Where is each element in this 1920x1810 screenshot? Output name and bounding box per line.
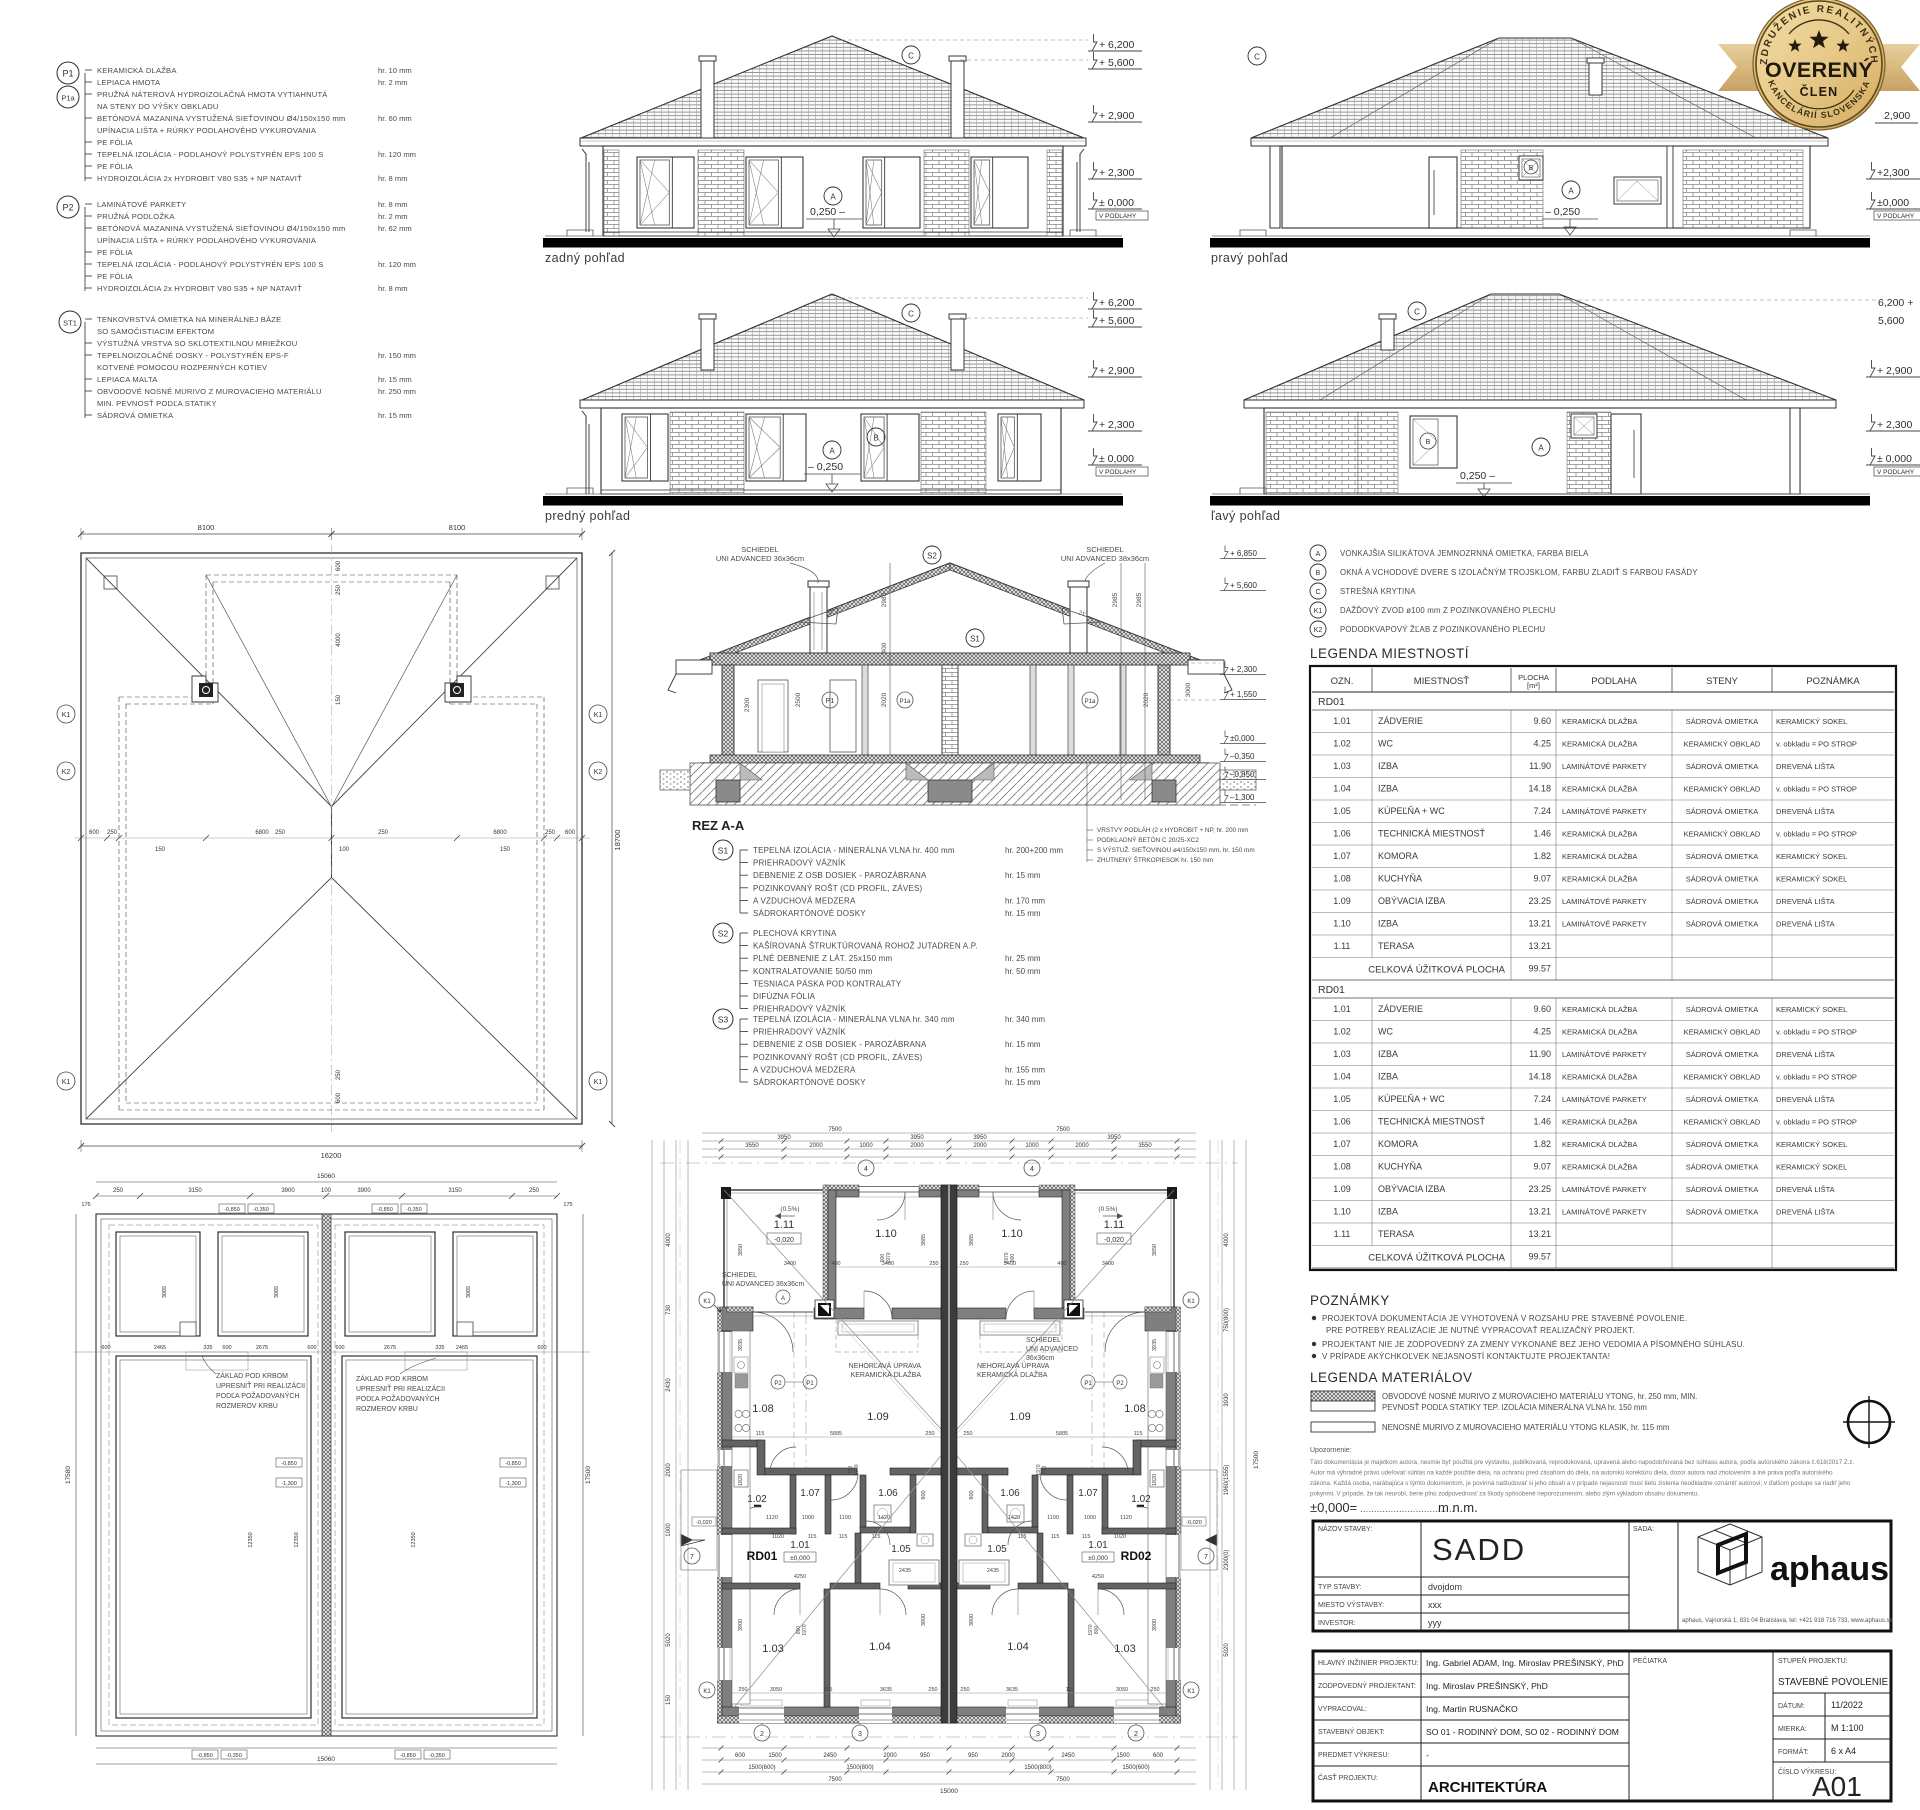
svg-text:900: 900 (1010, 1254, 1016, 1263)
svg-text:S3: S3 (718, 1015, 729, 1025)
svg-text:hr. 8 mm: hr. 8 mm (378, 174, 408, 183)
svg-text:LAMINÁTOVÉ PARKETY: LAMINÁTOVÉ PARKETY (1562, 1095, 1647, 1104)
svg-text:KERAMICKÁ DLAŽBA: KERAMICKÁ DLAŽBA (1562, 1118, 1637, 1127)
svg-text:UNI ADVANCED 36x36cm: UNI ADVANCED 36x36cm (716, 554, 804, 563)
svg-text:4250: 4250 (794, 1574, 806, 1580)
svg-text:STAVEBNÝ OBJEKT:: STAVEBNÝ OBJEKT: (1318, 1727, 1385, 1736)
svg-text:-: - (1426, 1750, 1429, 1760)
svg-text:SO 01 - RODINNÝ DOM, SO 02 - R: SO 01 - RODINNÝ DOM, SO 02 - RODINNÝ DOM (1426, 1727, 1619, 1737)
svg-text:SO SAMOČISTIACIM EFEKTOM: SO SAMOČISTIACIM EFEKTOM (97, 327, 214, 336)
svg-text:±0,000: ±0,000 (1877, 197, 1909, 209)
svg-text:KOMORA: KOMORA (1378, 1139, 1418, 1149)
svg-text:P1: P1 (1084, 1381, 1092, 1387)
svg-text:5885: 5885 (1056, 1431, 1068, 1437)
svg-text:Ing. Miroslav PREŠINSKÝ, PhD: Ing. Miroslav PREŠINSKÝ, PhD (1426, 1681, 1548, 1691)
svg-text:1.08: 1.08 (1333, 1162, 1351, 1172)
svg-text:V PODLAHY: V PODLAHY (1877, 213, 1915, 220)
svg-text:v. obkladu = PO STROP: v. obkladu = PO STROP (1776, 740, 1857, 749)
svg-text:OZN.: OZN. (1331, 676, 1354, 687)
svg-text:K2: K2 (594, 769, 603, 776)
svg-text:9.60: 9.60 (1533, 1004, 1551, 1014)
svg-text:PEVNOSŤ PODĽA STATIKY TEP.: PEVNOSŤ PODĽA STATIKY TEP. IZOLÁCIA MINE… (1382, 1403, 1647, 1412)
svg-text:+ 5,600: + 5,600 (1099, 315, 1134, 327)
svg-text:hr. 170 mm: hr. 170 mm (1005, 896, 1045, 905)
svg-text:hr. 15 mm: hr. 15 mm (1005, 909, 1041, 918)
svg-text:+ 2,300: + 2,300 (1099, 167, 1134, 179)
svg-text:PLNÉ DEBNENIE Z LÁT. 25x150 mm: PLNÉ DEBNENIE Z LÁT. 25x150 mm (753, 954, 893, 963)
svg-text:250: 250 (738, 1687, 747, 1693)
svg-text:aphaus: aphaus (1770, 1550, 1889, 1588)
svg-text:KERAMICKÁ DLAŽBA: KERAMICKÁ DLAŽBA (1562, 852, 1637, 861)
svg-text:400: 400 (1057, 1261, 1066, 1267)
svg-text:REZ A-A: REZ A-A (692, 818, 745, 833)
svg-text:11/2022: 11/2022 (1831, 1700, 1863, 1710)
svg-text:23.25: 23.25 (1528, 1184, 1551, 1194)
svg-text:KERAMICKÁ DLAŽBA: KERAMICKÁ DLAŽBA (851, 1370, 922, 1379)
svg-text:IZBA: IZBA (1378, 761, 1398, 771)
svg-text:1120: 1120 (766, 1515, 778, 1521)
svg-text:2000: 2000 (1075, 1143, 1089, 1149)
svg-text:2435: 2435 (899, 1568, 911, 1574)
svg-text:3930: 3930 (1224, 1393, 1230, 1407)
svg-text:hr. 250 mm: hr. 250 mm (378, 387, 416, 396)
svg-text:±0,000: ±0,000 (790, 1555, 810, 1562)
svg-text:16200: 16200 (321, 1151, 342, 1160)
svg-text:LAMINÁTOVÉ PARKETY: LAMINÁTOVÉ PARKETY (1562, 807, 1647, 816)
svg-text:15000: 15000 (940, 1788, 958, 1795)
svg-text:–0,350: –0,350 (1230, 752, 1255, 761)
svg-text:3900: 3900 (921, 1614, 927, 1626)
svg-text:-0,850: -0,850 (377, 1207, 393, 1213)
svg-text:13.21: 13.21 (1528, 1207, 1551, 1217)
svg-text:ČLEN: ČLEN (1800, 84, 1839, 99)
svg-text:115: 115 (1134, 1431, 1143, 1437)
svg-text:LAMINÁTOVÉ PARKETY: LAMINÁTOVÉ PARKETY (1562, 897, 1647, 906)
svg-text:175: 175 (563, 1202, 572, 1208)
svg-text:KERAMICKÝ OBKLAD: KERAMICKÝ OBKLAD (1684, 785, 1761, 794)
svg-text:SÁDROVÁ OMIETKA: SÁDROVÁ OMIETKA (1686, 1005, 1759, 1014)
svg-text:KERAMICKÁ DLAŽBA: KERAMICKÁ DLAŽBA (1562, 1005, 1637, 1014)
svg-text:1960(1555): 1960(1555) (1224, 1465, 1230, 1496)
svg-text:yyy: yyy (1428, 1618, 1442, 1628)
svg-text:v. obkladu = PO STROP: v. obkladu = PO STROP (1776, 785, 1857, 794)
svg-text:4250: 4250 (1092, 1574, 1104, 1580)
svg-text:KERAMICKÁ DLAŽBA: KERAMICKÁ DLAŽBA (97, 66, 177, 75)
svg-text:1.46: 1.46 (1533, 829, 1551, 839)
svg-text:A: A (1316, 551, 1321, 558)
svg-text:KAŠÍROVANÁ ŠTRUKTÚROVANÁ ROHOŽ: KAŠÍROVANÁ ŠTRUKTÚROVANÁ ROHOŽ JUTADREN … (753, 942, 978, 951)
svg-text:K1: K1 (594, 1079, 603, 1086)
svg-text:1970: 1970 (886, 1252, 892, 1263)
svg-text:hr. 120 mm: hr. 120 mm (378, 150, 416, 159)
svg-text:800: 800 (969, 1490, 975, 1499)
svg-text:250: 250 (275, 830, 286, 836)
svg-text:UPRESNIŤ PRI REALIZÁCII: UPRESNIŤ PRI REALIZÁCII (216, 1381, 305, 1390)
svg-text:dvojdom: dvojdom (1428, 1582, 1462, 1592)
svg-text:TERASA: TERASA (1378, 941, 1414, 951)
svg-text:1.11: 1.11 (1334, 1229, 1351, 1239)
svg-text:RD02: RD02 (1121, 1549, 1152, 1563)
svg-text:1.10: 1.10 (1333, 1207, 1351, 1217)
svg-text:1000: 1000 (666, 1523, 672, 1537)
svg-text:SÁDROVÁ OMIETKA: SÁDROVÁ OMIETKA (97, 411, 174, 420)
svg-text:15060: 15060 (317, 1173, 335, 1180)
svg-text:P2: P2 (1116, 1381, 1124, 1387)
svg-text:2000: 2000 (910, 1143, 924, 1149)
svg-text:ZÁKLAD POD KRBOM: ZÁKLAD POD KRBOM (216, 1371, 288, 1380)
svg-text:11.90: 11.90 (1529, 761, 1551, 771)
svg-text:-0,020: -0,020 (774, 1237, 794, 1244)
svg-text:1.06: 1.06 (1333, 1117, 1351, 1127)
svg-text:1.01: 1.01 (790, 1540, 810, 1551)
svg-text:SCHIEDEL: SCHIEDEL (1086, 545, 1124, 554)
svg-text:1.08: 1.08 (1124, 1403, 1145, 1415)
svg-text:SÁDROVÁ OMIETKA: SÁDROVÁ OMIETKA (1686, 1095, 1759, 1104)
svg-text:9.07: 9.07 (1533, 1162, 1551, 1172)
svg-text:1.06: 1.06 (878, 1488, 898, 1499)
svg-text:250: 250 (960, 1687, 969, 1693)
svg-text:A VZDUCHOVÁ MEDZERA: A VZDUCHOVÁ MEDZERA (753, 896, 856, 905)
svg-text:KERAMICKÁ DLAŽBA: KERAMICKÁ DLAŽBA (1562, 717, 1637, 726)
svg-text:3400: 3400 (784, 1261, 796, 1267)
svg-text:-0,020: -0,020 (1104, 1237, 1124, 1244)
svg-text:150: 150 (500, 847, 511, 853)
svg-text:POZNÁMKA: POZNÁMKA (1806, 676, 1860, 687)
svg-text:150: 150 (155, 847, 166, 853)
svg-text:2000: 2000 (809, 1143, 823, 1149)
svg-text:3: 3 (1036, 1731, 1040, 1738)
svg-text:1.02: 1.02 (1333, 739, 1351, 749)
svg-text:250: 250 (378, 830, 389, 836)
svg-text:STENY: STENY (1706, 676, 1738, 687)
svg-text:KUCHYŇA: KUCHYŇA (1378, 1162, 1422, 1172)
svg-text:hr. 10 mm: hr. 10 mm (378, 66, 412, 75)
svg-text:PODKLADNÝ BETÓN C 20/25-XC2: PODKLADNÝ BETÓN C 20/25-XC2 (1097, 835, 1199, 844)
svg-text:(0.5%): (0.5%) (1098, 1206, 1117, 1213)
svg-text:ARCHITEKTÚRA: ARCHITEKTÚRA (1428, 1778, 1547, 1796)
svg-text:-0,850: -0,850 (400, 1753, 416, 1759)
svg-text:VRSTVY PODLÁH (2 x HYDROBIT +: VRSTVY PODLÁH (2 x HYDROBIT + NP, hr. 20… (1097, 825, 1248, 834)
svg-text:SÁDROKARTÓNOVÉ DOSKY: SÁDROKARTÓNOVÉ DOSKY (753, 1078, 866, 1087)
svg-text:3935: 3935 (738, 1339, 744, 1351)
svg-text:750(800): 750(800) (1224, 1308, 1230, 1332)
svg-text:2435: 2435 (987, 1568, 999, 1574)
svg-text:SCHIEDEL: SCHIEDEL (722, 1272, 757, 1279)
svg-text:MIN. PEVNOSŤ PODĽA STATIKY: MIN. PEVNOSŤ PODĽA STATIKY (97, 399, 217, 408)
svg-text:600: 600 (307, 1345, 316, 1351)
svg-text:P1a: P1a (1085, 699, 1096, 705)
svg-text:2430: 2430 (666, 1378, 672, 1392)
svg-text:KÚPEĽŇA + WC: KÚPEĽŇA + WC (1378, 1094, 1445, 1104)
svg-text:1420: 1420 (1008, 1515, 1020, 1521)
svg-text:36x36cm: 36x36cm (1026, 1355, 1055, 1362)
svg-text:±0,000: ±0,000 (1230, 734, 1255, 743)
svg-text:BETÓNOVÁ MAZANINA VYSTUŽENÁ SI: BETÓNOVÁ MAZANINA VYSTUŽENÁ SIEŤOVINOU Ø… (97, 114, 345, 123)
svg-text:MIESTO VÝSTAVBY:: MIESTO VÝSTAVBY: (1318, 1600, 1384, 1609)
svg-text:1.02: 1.02 (1131, 1494, 1151, 1505)
svg-text:SÁDROVÁ OMIETKA: SÁDROVÁ OMIETKA (1686, 1140, 1759, 1149)
svg-text:335: 335 (203, 1345, 212, 1351)
svg-text:S2: S2 (927, 552, 937, 561)
svg-text:+ 5,600: + 5,600 (1099, 57, 1134, 69)
svg-text:700: 700 (1042, 1466, 1048, 1475)
svg-text:2675: 2675 (256, 1345, 268, 1351)
svg-text:2450: 2450 (1061, 1753, 1075, 1759)
svg-text:VONKAJŠIA SILIKÁTOVÁ JEMNOZRNN: VONKAJŠIA SILIKÁTOVÁ JEMNOZRNNÁ OMIETKA,… (1340, 549, 1589, 558)
svg-text:IZBA: IZBA (1378, 1207, 1398, 1217)
svg-text:K1: K1 (1187, 1299, 1195, 1305)
svg-text:C: C (908, 52, 914, 61)
svg-text:M 1:100: M 1:100 (1831, 1723, 1864, 1733)
svg-text:P1: P1 (826, 698, 835, 705)
svg-text:zadný pohľad: zadný pohľad (545, 251, 625, 265)
svg-text:B: B (1426, 439, 1431, 446)
svg-text:Upozornenie:: Upozornenie: (1310, 1447, 1352, 1454)
svg-text:POZNÁMKY: POZNÁMKY (1310, 1293, 1390, 1308)
svg-text:DEBNENIE Z OSB DOSIEK - PAROZÁ: DEBNENIE Z OSB DOSIEK - PAROZÁBRANA (753, 871, 927, 880)
svg-text:600: 600 (336, 1092, 342, 1103)
svg-text:13.21: 13.21 (1528, 919, 1551, 929)
svg-text:3900: 3900 (281, 1188, 295, 1194)
svg-text:0,250 –: 0,250 – (1460, 470, 1495, 482)
svg-text:1970: 1970 (1004, 1252, 1010, 1263)
svg-text:PODLAHA: PODLAHA (1591, 676, 1637, 687)
svg-text:4.25: 4.25 (1533, 1027, 1551, 1037)
svg-text:B: B (1529, 165, 1534, 172)
svg-text:MIERKA:: MIERKA: (1778, 1726, 1807, 1733)
svg-text:3400: 3400 (1102, 1261, 1114, 1267)
svg-text:99.57: 99.57 (1528, 1252, 1551, 1262)
svg-text:DAŽĎOVÝ ZVOD ø100 mm Z POZINKO: DAŽĎOVÝ ZVOD ø100 mm Z POZINKOVANÉHO PLE… (1340, 606, 1556, 615)
svg-text:-1,300: -1,300 (281, 1481, 297, 1487)
svg-text:175: 175 (81, 1202, 90, 1208)
svg-text:1500(600): 1500(600) (748, 1765, 775, 1771)
svg-text:SÁDROVÁ OMIETKA: SÁDROVÁ OMIETKA (1686, 807, 1759, 816)
svg-text:1.07: 1.07 (1333, 851, 1351, 861)
svg-text:NÁZOV STAVBY:: NÁZOV STAVBY: (1318, 1524, 1372, 1533)
svg-text:TEPELNÁ IZOLÁCIA - PODLAHOVÝ P: TEPELNÁ IZOLÁCIA - PODLAHOVÝ POLYSTYRÉN … (97, 150, 324, 159)
svg-text:predný pohľad: predný pohľad (545, 509, 630, 523)
svg-text:KERAMICKÁ DLAŽBA: KERAMICKÁ DLAŽBA (977, 1370, 1048, 1379)
svg-text:1.10: 1.10 (1333, 919, 1351, 929)
svg-text:PODĽA POŽADOVANÝCH: PODĽA POŽADOVANÝCH (216, 1391, 300, 1400)
svg-text:3150: 3150 (188, 1188, 202, 1194)
svg-text:S VÝSTUŽ. SIEŤOVINOU ø4/150x15: S VÝSTUŽ. SIEŤOVINOU ø4/150x150 mm, hr. … (1097, 845, 1255, 854)
svg-text:11.90: 11.90 (1529, 1049, 1551, 1059)
svg-text:600: 600 (537, 1345, 546, 1351)
svg-text:2020: 2020 (1143, 692, 1150, 707)
svg-text:100: 100 (321, 1188, 332, 1194)
svg-text:7.24: 7.24 (1533, 1094, 1551, 1104)
svg-text:-0,350: -0,350 (226, 1753, 242, 1759)
svg-text:1100: 1100 (839, 1515, 851, 1521)
svg-text:C: C (1414, 308, 1420, 317)
svg-text:KERAMICKÁ DLAŽBA: KERAMICKÁ DLAŽBA (1562, 830, 1637, 839)
svg-text:150: 150 (666, 1694, 672, 1705)
svg-text:1.05: 1.05 (987, 1544, 1007, 1555)
svg-text:RD01: RD01 (1318, 696, 1345, 708)
svg-text:TEPELNÁ IZOLÁCIA - MINERÁLNA V: TEPELNÁ IZOLÁCIA - MINERÁLNA VLNA hr. 40… (753, 846, 955, 855)
svg-text:1.08: 1.08 (1333, 874, 1351, 884)
svg-text:5020: 5020 (1224, 1643, 1230, 1657)
svg-text:PEČIATKA: PEČIATKA (1633, 1656, 1667, 1665)
svg-text:3000: 3000 (1185, 682, 1192, 697)
svg-text:18700: 18700 (613, 830, 622, 851)
svg-text:KERAMICKÁ DLAŽBA: KERAMICKÁ DLAŽBA (1562, 740, 1637, 749)
svg-text:NEHORĽAVÁ ÚPRAVA: NEHORĽAVÁ ÚPRAVA (849, 1361, 922, 1370)
svg-text:TEPELNOIZOLAČNÉ DOSKY - POLYST: TEPELNOIZOLAČNÉ DOSKY - POLYSTYRÉN EPS-F (97, 351, 289, 360)
svg-text:115: 115 (1018, 1534, 1027, 1540)
svg-text:A VZDUCHOVÁ MEDZERA: A VZDUCHOVÁ MEDZERA (753, 1065, 856, 1074)
svg-text:KERAMICKÁ DLAŽBA: KERAMICKÁ DLAŽBA (1562, 875, 1637, 884)
svg-text:2500: 2500 (795, 692, 802, 707)
svg-text:K1: K1 (1314, 608, 1323, 615)
svg-text:4000: 4000 (336, 633, 342, 647)
svg-text:-0,850: -0,850 (224, 1207, 240, 1213)
svg-text:1420: 1420 (878, 1515, 890, 1521)
svg-text:PRIEHRADOVÝ VÄZNÍK: PRIEHRADOVÝ VÄZNÍK (753, 1005, 846, 1014)
svg-text:+ 1,550: + 1,550 (1230, 690, 1257, 699)
svg-text:hr. 15 mm: hr. 15 mm (1005, 1040, 1041, 1049)
svg-text:115: 115 (1082, 1534, 1091, 1540)
svg-text:250: 250 (336, 584, 342, 595)
svg-text:1.11: 1.11 (774, 1219, 795, 1231)
svg-text:Ing. Gabriel ADAM, Ing. Mirosl: Ing. Gabriel ADAM, Ing. Miroslav PREŠINS… (1426, 1658, 1624, 1668)
svg-text:hr. 2 mm: hr. 2 mm (378, 78, 408, 87)
svg-text:± 0,000: ± 0,000 (1099, 453, 1134, 465)
svg-text:KERAMICKÝ SOKEL: KERAMICKÝ SOKEL (1776, 875, 1847, 884)
svg-text:hr. 200+200 mm: hr. 200+200 mm (1005, 846, 1063, 855)
svg-text:TECHNICKÁ MIESTNOSŤ: TECHNICKÁ MIESTNOSŤ (1378, 1117, 1486, 1127)
svg-text:17580: 17580 (65, 1466, 72, 1484)
svg-text:KERAMICKÝ OBKLAD: KERAMICKÝ OBKLAD (1684, 740, 1761, 749)
svg-text:1500: 1500 (1116, 1753, 1130, 1759)
svg-text:-0,350: -0,350 (253, 1207, 269, 1213)
svg-text:1500: 1500 (768, 1753, 782, 1759)
svg-text:17500: 17500 (585, 1466, 592, 1484)
svg-text:PREDMET VÝKRESU:: PREDMET VÝKRESU: (1318, 1750, 1389, 1759)
svg-text:DREVENÁ LIŠTA: DREVENÁ LIŠTA (1776, 897, 1835, 906)
svg-text:K1: K1 (62, 712, 71, 719)
svg-text:115: 115 (1051, 1534, 1060, 1540)
svg-text:CELKOVÁ ÚŽITKOVÁ PLOCHA: CELKOVÁ ÚŽITKOVÁ PLOCHA (1368, 1253, 1505, 1264)
svg-text:1820: 1820 (738, 1474, 744, 1486)
svg-text:1970: 1970 (802, 1624, 808, 1635)
svg-text:1.11: 1.11 (1104, 1219, 1125, 1231)
svg-text:POZINKOVANÝ ROŠT (CD PROFIL, Z: POZINKOVANÝ ROŠT (CD PROFIL, ZÁVES) (753, 1053, 923, 1062)
svg-text:115: 115 (824, 1687, 833, 1693)
svg-text:+ 2,300: + 2,300 (1099, 419, 1134, 431)
svg-text:K2: K2 (1314, 627, 1323, 634)
svg-text:1.03: 1.03 (1333, 761, 1351, 771)
svg-text:950: 950 (968, 1753, 979, 1759)
svg-text:2300(0): 2300(0) (1224, 1550, 1230, 1571)
svg-text:KERAMICKÝ SOKEL: KERAMICKÝ SOKEL (1776, 1140, 1847, 1149)
svg-text:+ 2,300: + 2,300 (1877, 419, 1912, 431)
svg-text:Táto dokumentácia je majetkom: Táto dokumentácia je majetkom autora, ne… (1310, 1459, 1854, 1466)
svg-text:hr. 120 mm: hr. 120 mm (378, 260, 416, 269)
svg-text:+2,300: +2,300 (1877, 167, 1910, 179)
svg-text:OBÝVACIA IZBA: OBÝVACIA IZBA (1378, 896, 1445, 906)
svg-text:+ 6,200: + 6,200 (1099, 297, 1134, 309)
svg-text:LAMINÁTOVÉ PARKETY: LAMINÁTOVÉ PARKETY (1562, 1208, 1647, 1217)
svg-text:RD01: RD01 (747, 1549, 778, 1563)
svg-text:250: 250 (529, 1188, 540, 1194)
svg-text:OKNÁ A VCHODOVÉ DVERE S IZOLAČ: OKNÁ A VCHODOVÉ DVERE S IZOLAČNÝM TROJSK… (1340, 568, 1698, 577)
svg-text:2300: 2300 (744, 697, 751, 712)
svg-text:400: 400 (831, 1261, 840, 1267)
svg-text:hr. 15 mm: hr. 15 mm (378, 375, 412, 384)
svg-text:KERAMICKÝ SOKEL: KERAMICKÝ SOKEL (1776, 717, 1847, 726)
svg-text:IZBA: IZBA (1378, 784, 1398, 794)
svg-text:PODODKVAPOVÝ ŽĽAB Z POZINKOVAN: PODODKVAPOVÝ ŽĽAB Z POZINKOVANÉHO PLECHU (1340, 625, 1545, 634)
svg-text:1.02: 1.02 (1333, 1027, 1351, 1037)
svg-text:hr. 15 mm: hr. 15 mm (378, 411, 412, 420)
svg-text:1000: 1000 (802, 1515, 814, 1521)
svg-text:600: 600 (89, 830, 100, 836)
svg-text:hr. 15 mm: hr. 15 mm (1005, 871, 1041, 880)
svg-text:250: 250 (929, 1261, 938, 1267)
svg-text:3635: 3635 (880, 1687, 892, 1693)
svg-text:KERAMICKÁ DLAŽBA: KERAMICKÁ DLAŽBA (1562, 1073, 1637, 1082)
svg-text:3900: 3900 (969, 1614, 975, 1626)
svg-text:WC: WC (1378, 739, 1393, 749)
svg-text:pravý pohľad: pravý pohľad (1211, 251, 1288, 265)
svg-text:1.05: 1.05 (1333, 806, 1351, 816)
svg-text:-0,350: -0,350 (406, 1207, 422, 1213)
svg-text:7500: 7500 (1056, 1777, 1070, 1783)
svg-text:HYDROIZOLÁCIA 2x HYDROBIT V80: HYDROIZOLÁCIA 2x HYDROBIT V80 S35 + NP N… (97, 174, 302, 183)
svg-text:1.82: 1.82 (1533, 1139, 1551, 1149)
svg-text:115: 115 (839, 1534, 848, 1540)
svg-text:KERAMICKÁ DLAŽBA: KERAMICKÁ DLAŽBA (1562, 1163, 1637, 1172)
svg-text:PE FÓLIA: PE FÓLIA (97, 248, 134, 257)
svg-text:OVERENÝ: OVERENÝ (1765, 57, 1873, 82)
svg-text:– 0,250: – 0,250 (1545, 206, 1580, 218)
svg-text:A: A (1538, 444, 1544, 453)
svg-text:hr. 62 mm: hr. 62 mm (378, 224, 412, 233)
svg-text:600: 600 (336, 560, 342, 571)
svg-text:17500: 17500 (1253, 1451, 1260, 1469)
svg-text:hr. 60 mm: hr. 60 mm (378, 114, 412, 123)
svg-text:hr. 50 mm: hr. 50 mm (1005, 967, 1041, 976)
svg-text:V PODLAHY: V PODLAHY (1099, 469, 1137, 476)
svg-text:-0,350: -0,350 (429, 1753, 445, 1759)
svg-text:PROJEKTOVÁ DOKUMENTÁCIA JE VYH: PROJEKTOVÁ DOKUMENTÁCIA JE VYHOTOVENÁ V … (1322, 1314, 1687, 1323)
svg-text:ROZMEROV KRBU: ROZMEROV KRBU (356, 1406, 418, 1413)
svg-text:CELKOVÁ ÚŽITKOVÁ PLOCHA: CELKOVÁ ÚŽITKOVÁ PLOCHA (1368, 965, 1505, 976)
svg-text:A01: A01 (1812, 1771, 1862, 1802)
svg-text:LAMINÁTOVÉ PARKETY: LAMINÁTOVÉ PARKETY (1562, 1050, 1647, 1059)
svg-text:2985: 2985 (1112, 592, 1119, 607)
svg-text:DIFÚZNA FÓLIA: DIFÚZNA FÓLIA (753, 992, 816, 1001)
svg-text:115: 115 (1066, 1687, 1075, 1693)
svg-text:950: 950 (920, 1753, 931, 1759)
svg-text:DREVENÁ LIŠTA: DREVENÁ LIŠTA (1776, 1208, 1835, 1217)
svg-text:6800: 6800 (255, 830, 269, 836)
svg-text:-0,850: -0,850 (197, 1753, 213, 1759)
svg-text:hr. 340 mm: hr. 340 mm (1005, 1015, 1045, 1024)
svg-text:2000: 2000 (973, 1143, 987, 1149)
svg-text:14.18: 14.18 (1528, 1072, 1551, 1082)
svg-text:KERAMICKÝ SOKEL: KERAMICKÝ SOKEL (1776, 1005, 1847, 1014)
svg-text:DÁTUM:: DÁTUM: (1778, 1701, 1805, 1710)
svg-text:PROJEKTANT NIE JE ZODPOVEDNÝ: PROJEKTANT NIE JE ZODPOVEDNÝ ZA ZMENY VY… (1322, 1340, 1745, 1349)
svg-text:3900: 3900 (1152, 1619, 1158, 1631)
svg-text:INVESTOR:: INVESTOR: (1318, 1620, 1356, 1627)
svg-text:UPÍNACIA LIŠTA + RÚRKY PODLAHO: UPÍNACIA LIŠTA + RÚRKY PODLAHOVÉHO VYKUR… (97, 236, 317, 245)
svg-text:hr. 155 mm: hr. 155 mm (1005, 1065, 1045, 1074)
